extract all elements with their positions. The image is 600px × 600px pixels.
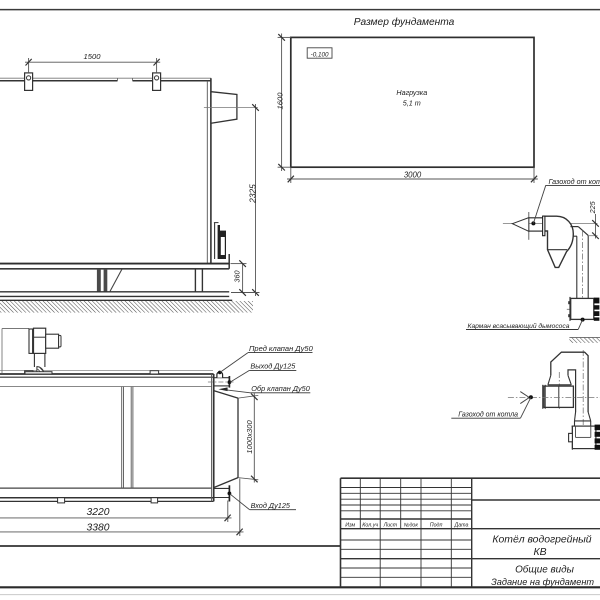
svg-text:Пред клапан Ду50: Пред клапан Ду50 <box>249 344 314 353</box>
svg-text:Вход Ду125: Вход Ду125 <box>251 501 291 510</box>
svg-text:Дата: Дата <box>454 523 469 529</box>
svg-text:225: 225 <box>588 200 597 214</box>
svg-text:Котёл водогрейный: Котёл водогрейный <box>492 535 591 546</box>
svg-text:КВ: КВ <box>533 547 546 558</box>
svg-text:360: 360 <box>233 271 242 283</box>
svg-text:Кол.уч: Кол.уч <box>362 523 378 529</box>
svg-text:№док: №док <box>404 523 419 529</box>
svg-text:3220: 3220 <box>87 507 110 518</box>
svg-text:Выход Ду125: Выход Ду125 <box>250 362 296 371</box>
svg-text:2325: 2325 <box>248 184 258 204</box>
svg-text:3380: 3380 <box>87 523 110 534</box>
svg-text:Карман всасывающий дымососа: Карман всасывающий дымососа <box>468 322 570 330</box>
svg-text:Изм: Изм <box>345 523 355 529</box>
svg-text:Общие виды: Общие виды <box>515 565 574 576</box>
svg-text:Обр клапан Ду50: Обр клапан Ду50 <box>251 384 310 393</box>
svg-text:Подп: Подп <box>430 523 443 529</box>
svg-text:1500: 1500 <box>84 52 102 61</box>
svg-text:Газоход от котла: Газоход от котла <box>549 177 600 186</box>
svg-text:1000х300: 1000х300 <box>245 420 254 454</box>
svg-text:3000: 3000 <box>404 171 422 180</box>
svg-text:5,1 т: 5,1 т <box>403 99 421 108</box>
svg-text:Нагрузка: Нагрузка <box>396 88 427 97</box>
svg-text:Размер фундамента: Размер фундамента <box>354 16 455 28</box>
svg-text:Лист: Лист <box>383 523 398 529</box>
svg-text:1600: 1600 <box>276 92 285 110</box>
svg-text:Газоход от котла: Газоход от котла <box>458 411 518 419</box>
svg-text:Задание на фундамент: Задание на фундамент <box>491 577 594 587</box>
svg-text:-0,100: -0,100 <box>311 51 329 58</box>
